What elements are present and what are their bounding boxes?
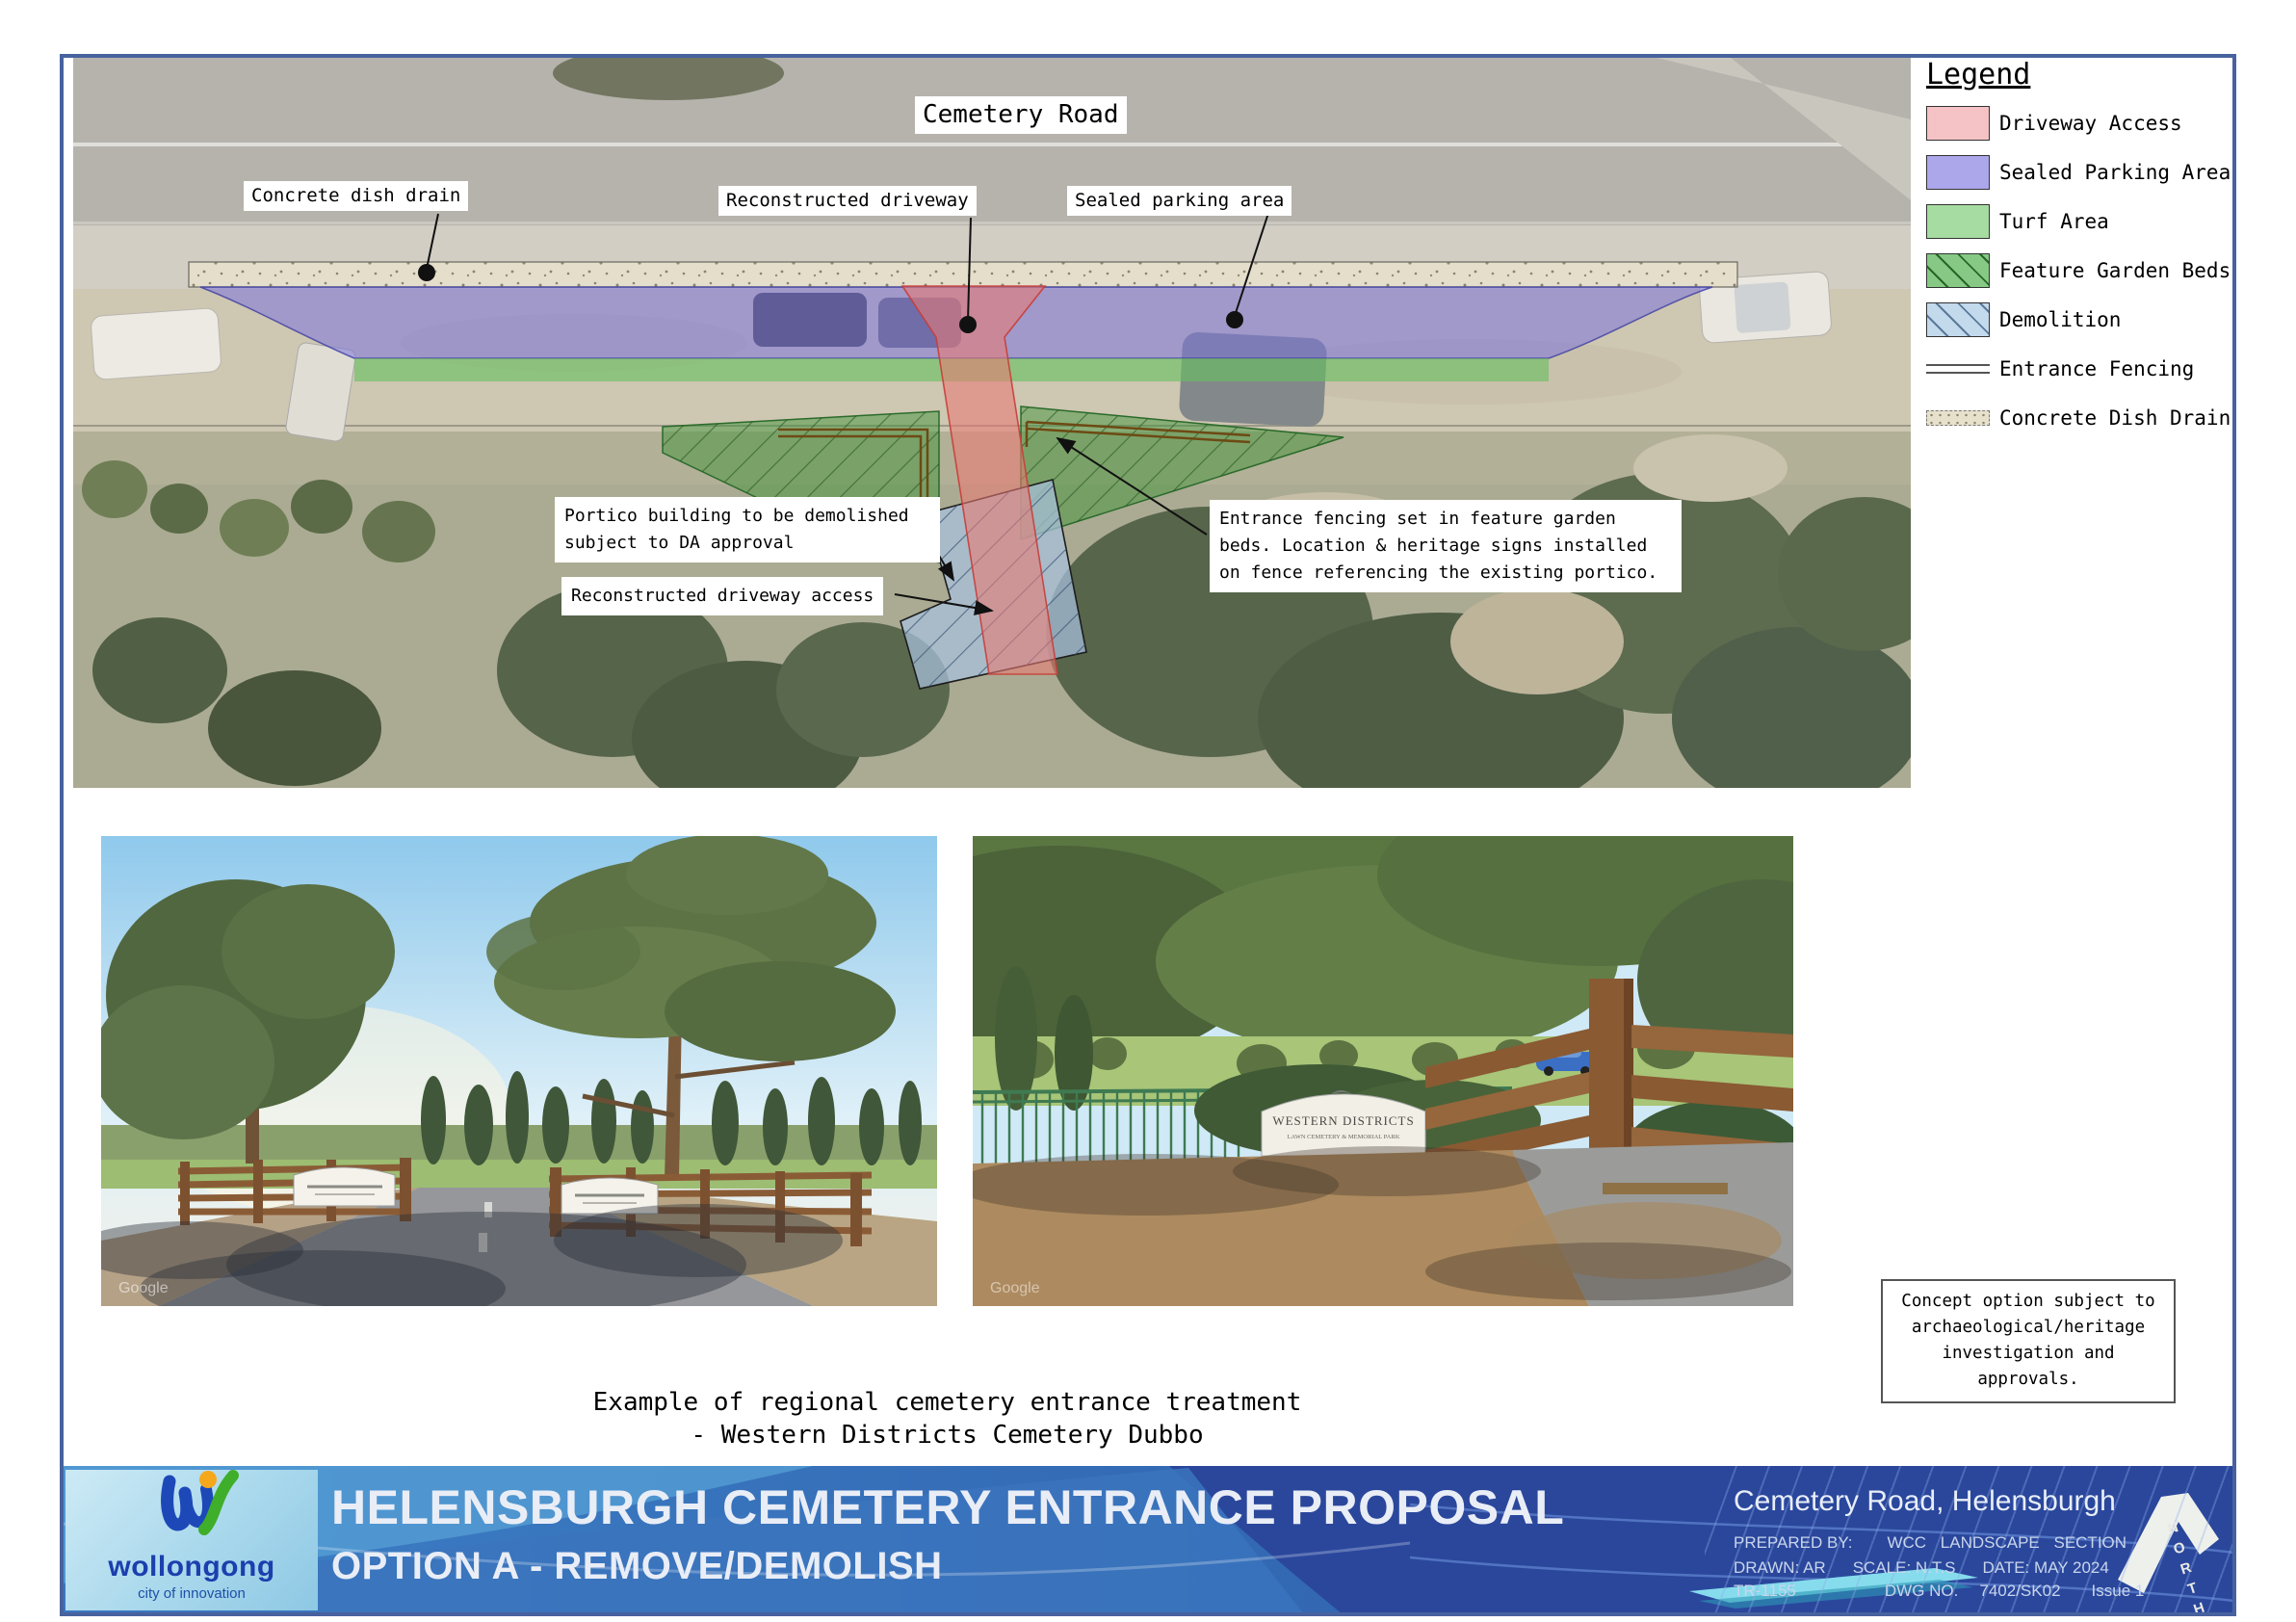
logo-name: wollongong [108, 1551, 274, 1583]
aerial-plan [73, 54, 1911, 788]
access-annotation: Reconstructed driveway access [561, 577, 883, 615]
photo-watermark: Google [118, 1280, 169, 1296]
legend-item-sealed-parking: Sealed Parking Area [1926, 154, 2244, 191]
garden-beds-swatch [1926, 253, 1990, 288]
photo-entrance-gate: WESTERN DISTRICTS LAWN CEMETERY & MEMORI… [973, 836, 1793, 1306]
driveway-label: Reconstructed driveway [718, 186, 977, 216]
titleblock-ref: TR-1155 DWG NO. 7402/SK02 Issue 1 [1734, 1582, 2144, 1601]
legend-item-demolition: Demolition [1926, 301, 2244, 338]
photo-caption: Example of regional cemetery entrance tr… [101, 1387, 1793, 1452]
legend: Legend Driveway Access Sealed Parking Ar… [1926, 58, 2244, 449]
drain-label: Concrete dish drain [244, 181, 468, 211]
sheet-title: HELENSBURGH CEMETERY ENTRANCE PROPOSAL [331, 1479, 1564, 1535]
portico-annotation: Portico building to be demolished subjec… [555, 497, 940, 562]
sheet-subtitle: OPTION A - REMOVE/DEMOLISH [331, 1545, 943, 1588]
road-label: Cemetery Road [915, 96, 1127, 134]
legend-item-driveway-access: Driveway Access [1926, 105, 2244, 142]
svg-text:LAWN CEMETERY & MEMORIAL PARK: LAWN CEMETERY & MEMORIAL PARK [1288, 1134, 1400, 1140]
concept-note: Concept option subject to archaeological… [1881, 1279, 2176, 1403]
photo-watermark: Google [990, 1280, 1040, 1296]
logo-tagline: city of innovation [138, 1585, 246, 1602]
caption-line1: Example of regional cemetery entrance tr… [101, 1387, 1793, 1420]
driveway-access-swatch [1926, 106, 1990, 141]
sealed-parking-swatch [1926, 155, 1990, 190]
titleblock-drawn: DRAWN: AR SCALE: N.T.S DATE: MAY 2024 [1734, 1558, 2109, 1578]
council-logo: wollongong city of innovation [65, 1470, 318, 1610]
titleblock-location: Cemetery Road, Helensburgh [1734, 1485, 2116, 1518]
parking-label: Sealed parking area [1067, 186, 1291, 216]
drawing-sheet: Cemetery Road Concrete dish drain Recons… [0, 0, 2296, 1622]
demolition-swatch [1926, 302, 1990, 337]
legend-item-garden-beds: Feature Garden Beds [1926, 252, 2244, 289]
titleblock-prepared: PREPARED BY: WCC LANDSCAPE SECTION [1734, 1533, 2126, 1553]
photo-entrance-wide: Google [101, 836, 937, 1306]
caption-line2: - Western Districts Cemetery Dubbo [101, 1420, 1793, 1452]
fencing-annotation: Entrance fencing set in feature garden b… [1210, 500, 1682, 592]
wollongong-logo-icon [119, 1470, 264, 1553]
legend-item-dish-drain: Concrete Dish Drain [1926, 400, 2244, 436]
legend-item-turf-area: Turf Area [1926, 203, 2244, 240]
svg-text:WESTERN DISTRICTS: WESTERN DISTRICTS [1272, 1113, 1414, 1128]
turf-area-swatch [1926, 204, 1990, 239]
legend-item-entrance-fencing: Entrance Fencing [1926, 351, 2244, 387]
entrance-fencing-swatch [1926, 364, 1990, 374]
dish-drain-swatch [1926, 410, 1990, 426]
legend-title: Legend [1926, 58, 2244, 92]
